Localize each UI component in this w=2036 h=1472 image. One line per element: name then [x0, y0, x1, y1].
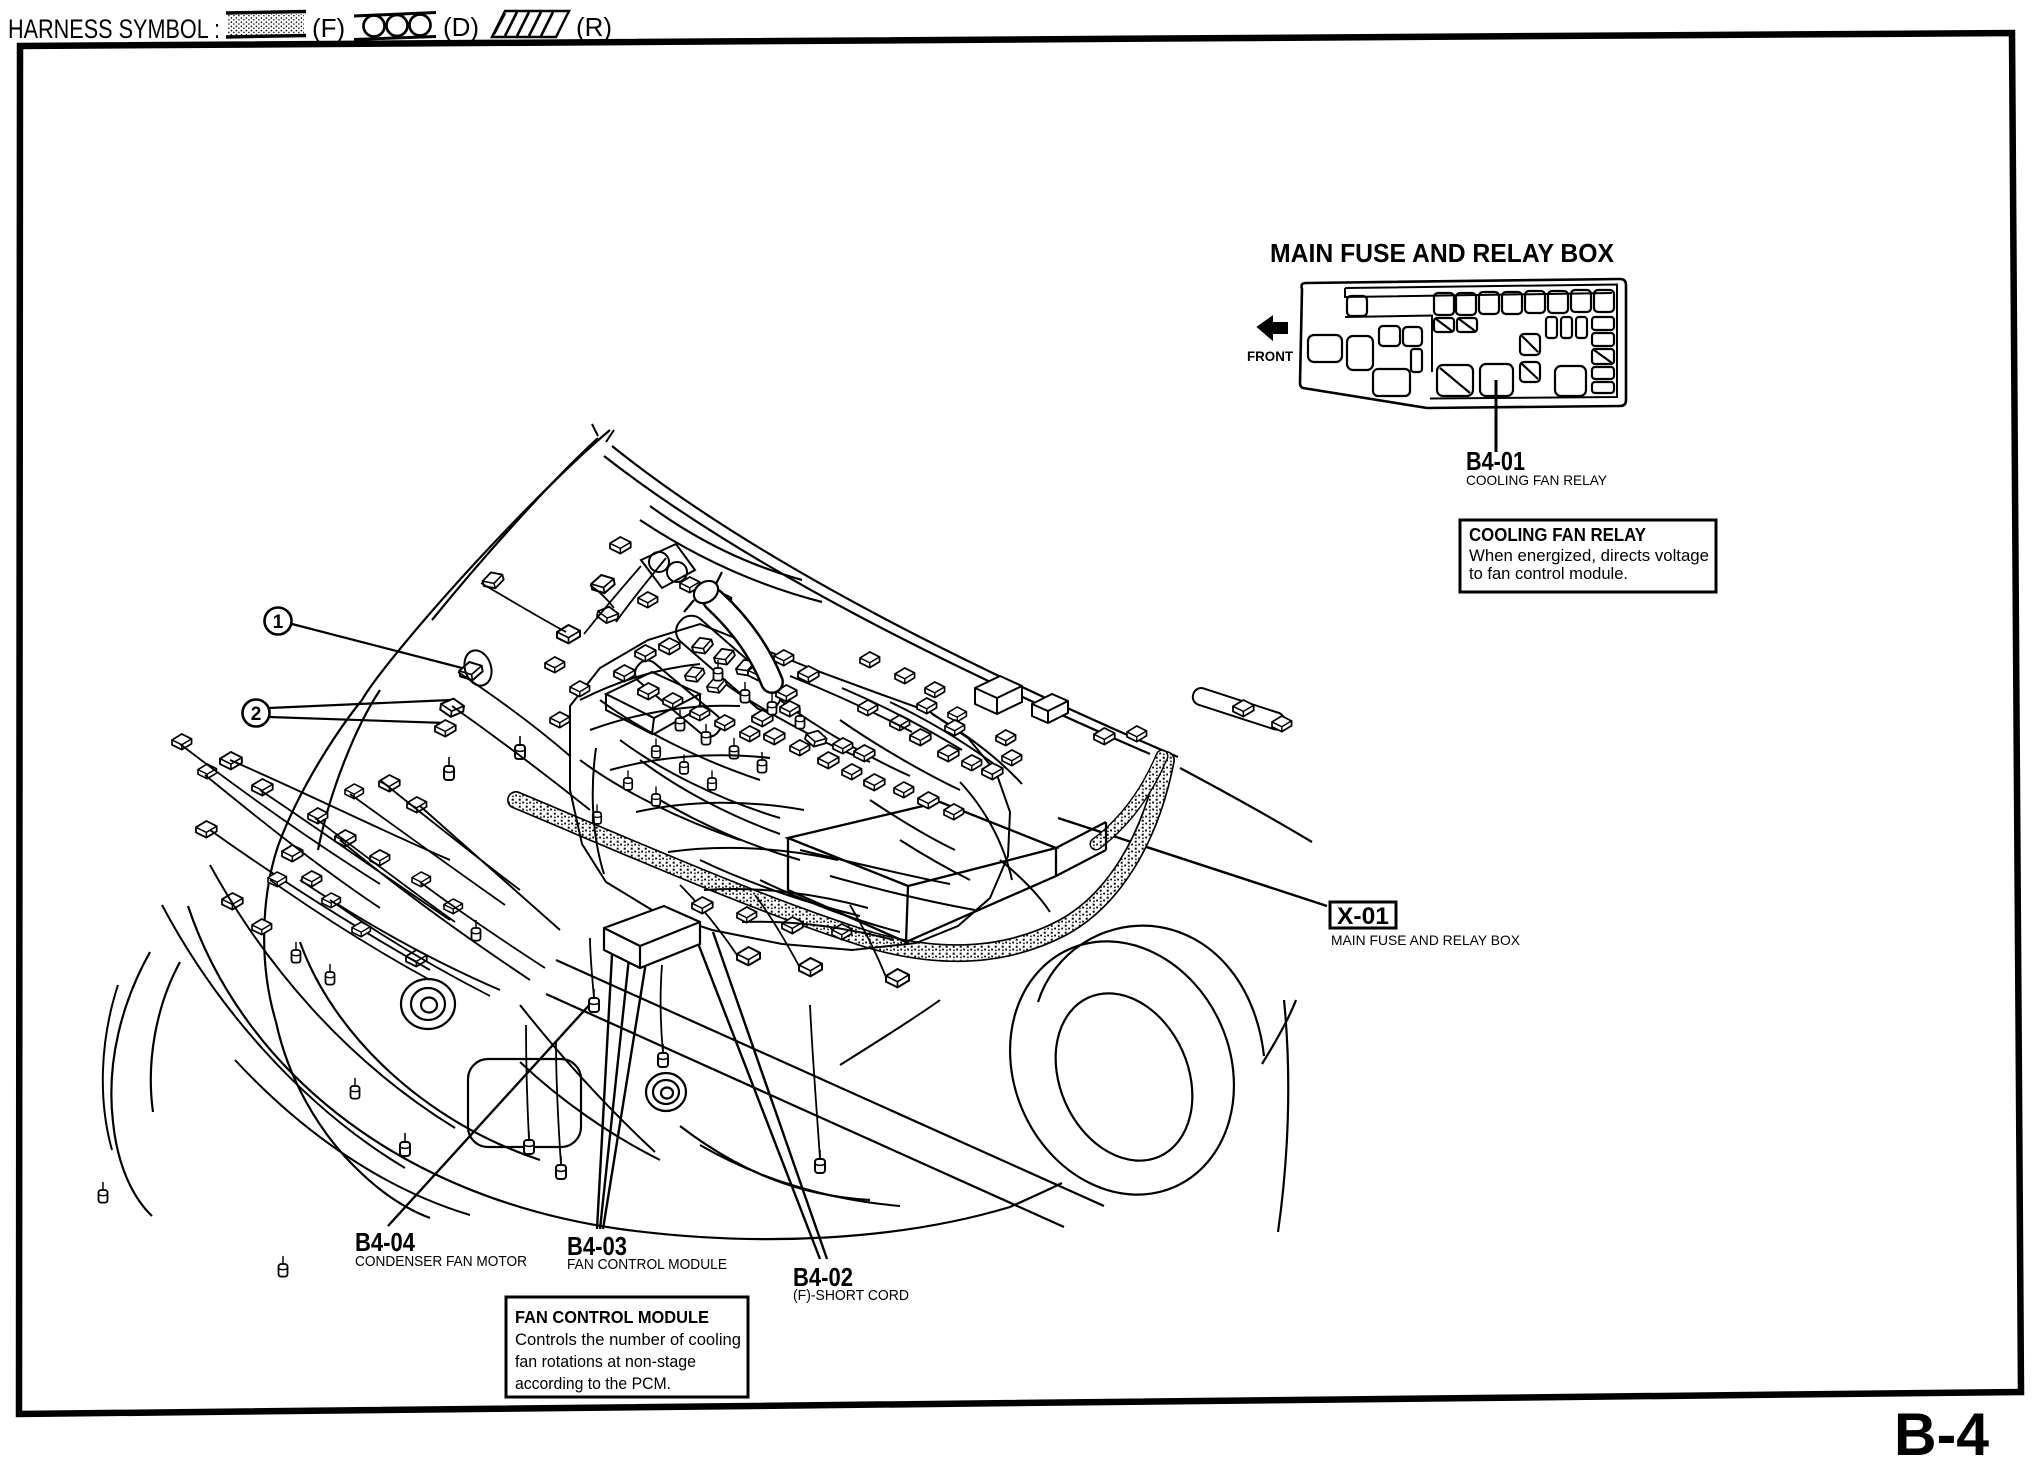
svg-text:B-4: B-4 [1894, 1401, 1990, 1468]
svg-text:FAN CONTROL MODULE: FAN CONTROL MODULE [515, 1307, 709, 1327]
svg-text:Controls the number of cooling: Controls the number of cooling [515, 1331, 741, 1349]
svg-text:FAN CONTROL MODULE: FAN CONTROL MODULE [567, 1257, 727, 1273]
svg-text:HARNESS SYMBOL :: HARNESS SYMBOL : [8, 14, 220, 44]
svg-text:When energized, directs voltag: When energized, directs voltage [1469, 546, 1709, 565]
svg-text:CONDENSER FAN MOTOR: CONDENSER FAN MOTOR [355, 1254, 527, 1270]
svg-text:(D): (D) [443, 12, 479, 42]
svg-text:COOLING FAN RELAY: COOLING FAN RELAY [1466, 472, 1608, 488]
svg-text:X-01: X-01 [1337, 903, 1389, 930]
svg-text:(F): (F) [312, 13, 345, 43]
svg-text:2: 2 [251, 704, 262, 725]
svg-text:B4-04: B4-04 [355, 1227, 415, 1257]
svg-text:fan rotations at non-stage: fan rotations at non-stage [515, 1353, 696, 1371]
svg-text:according to the PCM.: according to the PCM. [515, 1375, 671, 1393]
svg-text:FRONT: FRONT [1247, 348, 1293, 364]
svg-text:1: 1 [273, 612, 284, 633]
svg-text:MAIN FUSE AND RELAY BOX: MAIN FUSE AND RELAY BOX [1331, 932, 1521, 948]
svg-text:(R): (R) [576, 12, 612, 42]
svg-text:COOLING FAN RELAY: COOLING FAN RELAY [1469, 525, 1646, 545]
svg-text:to fan control module.: to fan control module. [1469, 564, 1628, 583]
svg-text:MAIN FUSE AND RELAY BOX: MAIN FUSE AND RELAY BOX [1270, 238, 1615, 268]
svg-text:(F)-SHORT CORD: (F)-SHORT CORD [793, 1288, 909, 1304]
